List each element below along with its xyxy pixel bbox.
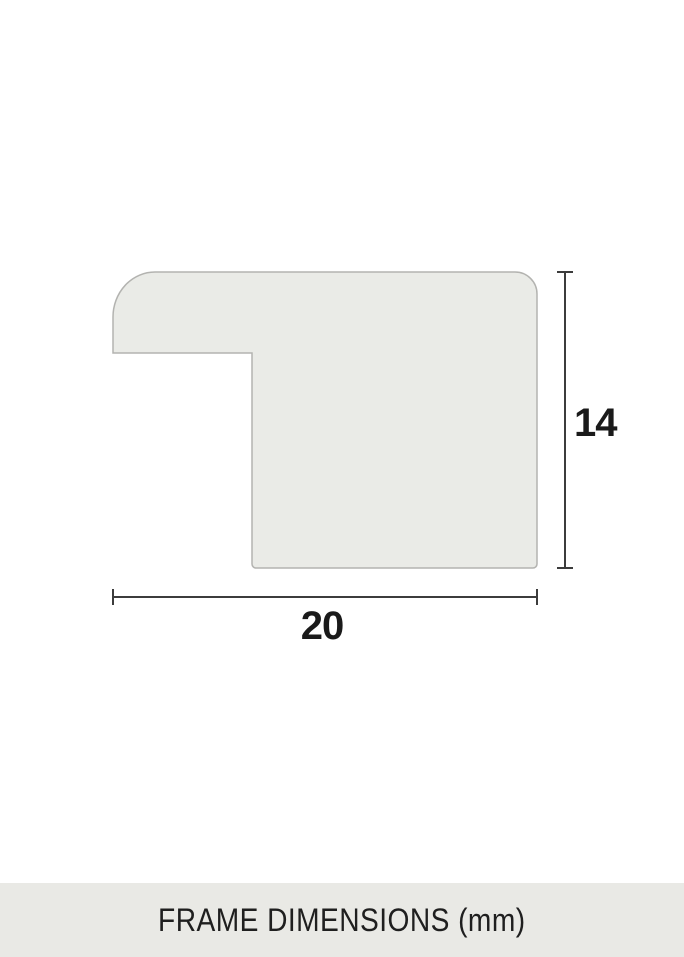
footer-caption: FRAME DIMENSIONS (mm) (158, 904, 525, 936)
height-dimension-label: 14 (574, 403, 617, 443)
height-dimension-line (557, 272, 573, 568)
frame-profile-shape (113, 272, 537, 568)
width-dimension-label: 20 (290, 606, 354, 646)
footer-caption-bar: FRAME DIMENSIONS (mm) (0, 883, 684, 957)
width-dimension-line (113, 589, 537, 605)
frame-dimensions-page: 14 20 FRAME DIMENSIONS (mm) (0, 0, 684, 957)
frame-dimension-diagram (0, 0, 684, 700)
